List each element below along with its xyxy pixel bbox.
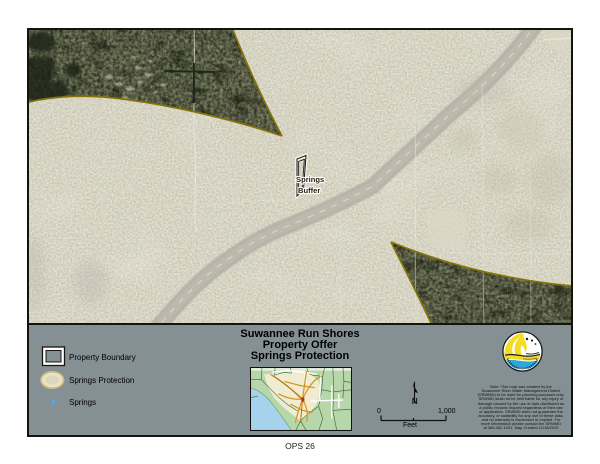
svg-text:N: N — [412, 397, 418, 406]
svg-text:Buffer: Buffer — [298, 186, 320, 195]
svg-text:Springs: Springs — [296, 175, 324, 184]
